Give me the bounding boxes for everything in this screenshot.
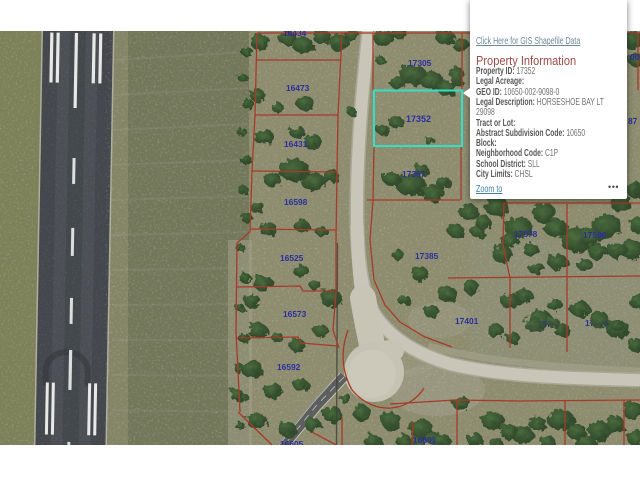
svg-text:17401: 17401 [455,316,479,326]
svg-text:17385: 17385 [415,251,439,261]
svg-text:17352: 17352 [406,114,431,124]
svg-text:16525: 16525 [280,253,304,263]
svg-text:16592: 16592 [277,362,301,372]
svg-text:16473: 16473 [286,83,310,93]
svg-text:17367: 17367 [402,169,426,179]
svg-text:005: 005 [630,52,640,62]
svg-text:16573: 16573 [283,309,307,319]
svg-text:16601: 16601 [413,435,437,445]
svg-text:16598: 16598 [284,197,308,207]
svg-text:87: 87 [628,116,638,126]
svg-text:17305: 17305 [408,58,432,68]
svg-text:17578: 17578 [514,229,538,239]
svg-text:17586: 17586 [583,230,607,240]
svg-text:16431: 16431 [284,139,308,149]
